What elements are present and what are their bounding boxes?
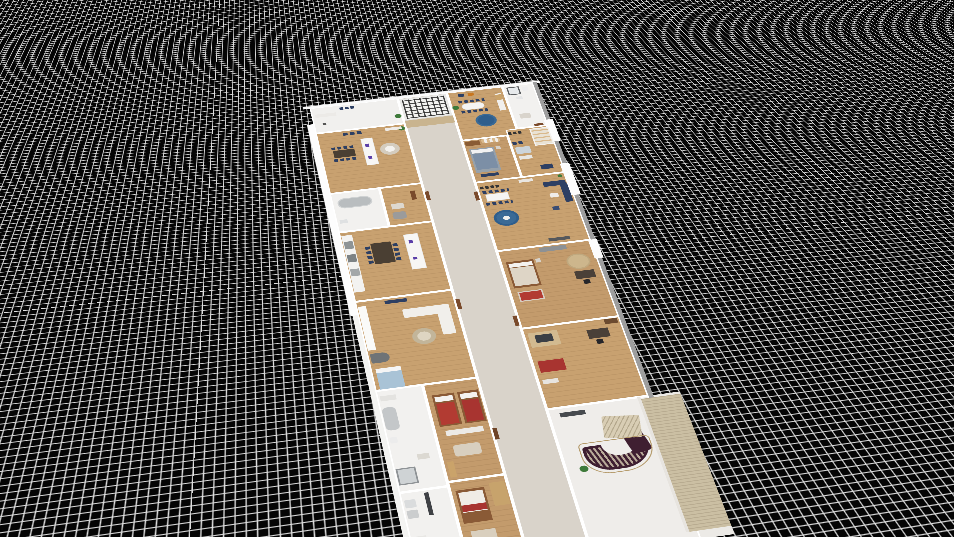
purple-decor-4[interactable] <box>413 257 418 260</box>
purple-decor-3[interactable] <box>408 240 413 244</box>
appliance-1[interactable] <box>344 241 355 249</box>
shower-sw[interactable] <box>395 466 419 485</box>
chair-dark-office[interactable] <box>596 339 604 344</box>
toilet-ne[interactable] <box>522 86 529 91</box>
floorplan-3d-viewport[interactable] <box>0 0 954 537</box>
dryer[interactable] <box>406 509 419 519</box>
appliance-3[interactable] <box>350 268 361 276</box>
nightstand-ne[interactable] <box>495 146 501 149</box>
cabinet-ne-tan[interactable] <box>495 94 503 100</box>
nightstand-east[interactable] <box>535 258 541 262</box>
purple-decor-2[interactable] <box>368 156 372 159</box>
toilet-sw[interactable] <box>389 437 398 444</box>
washer[interactable] <box>404 499 417 509</box>
chair-dark-east[interactable] <box>583 279 591 284</box>
appliance-2[interactable] <box>347 254 358 263</box>
stairs-steps-fan[interactable] <box>601 415 642 438</box>
purple-decor-1[interactable] <box>365 144 370 148</box>
armchair-navy-le[interactable] <box>552 206 560 210</box>
shower-ne[interactable] <box>506 86 521 95</box>
